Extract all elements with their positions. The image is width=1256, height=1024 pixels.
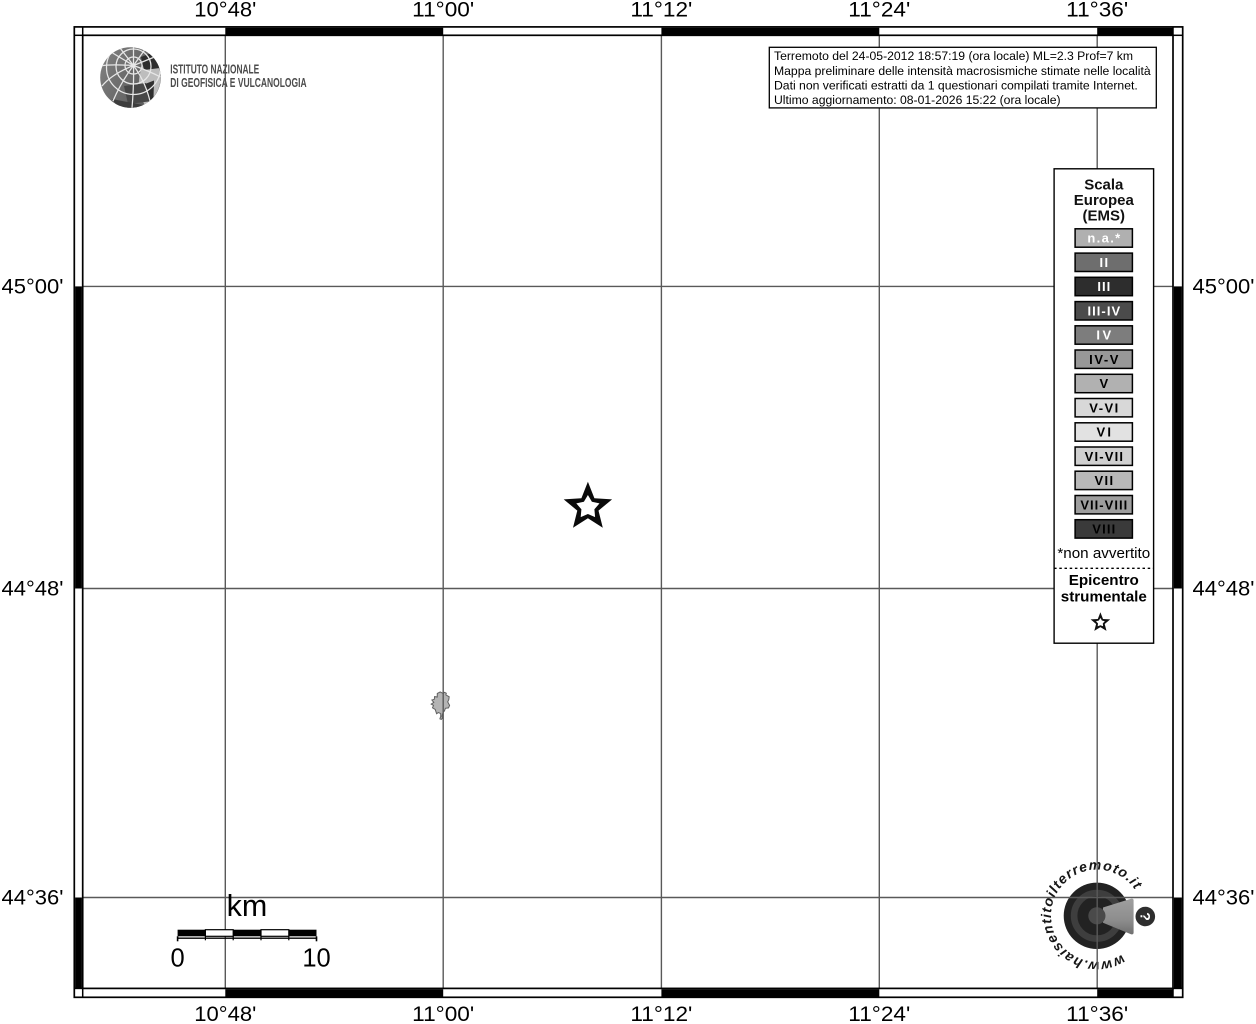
svg-text:44°48': 44°48'	[1193, 577, 1255, 601]
svg-text:10: 10	[302, 944, 330, 972]
svg-text:ISTITUTO NAZIONALE: ISTITUTO NAZIONALE	[170, 63, 259, 77]
svg-text:V-VI: V-VI	[1089, 400, 1118, 415]
svg-text:III-IV: III-IV	[1087, 304, 1120, 319]
svg-text:II: II	[1100, 255, 1109, 270]
svg-text:Dati non verificati estratti d: Dati non verificati estratti da 1 questi…	[774, 78, 1138, 92]
svg-text:44°36': 44°36'	[2, 886, 64, 910]
svg-text:VI-VII: VI-VII	[1085, 449, 1123, 464]
svg-text:Epicentro: Epicentro	[1069, 572, 1139, 589]
svg-text:11°24': 11°24'	[848, 0, 910, 22]
svg-text:VI: VI	[1097, 425, 1112, 440]
svg-text:n.a.*: n.a.*	[1087, 231, 1121, 246]
svg-text:45°00': 45°00'	[2, 274, 64, 298]
svg-text:IV: IV	[1096, 328, 1111, 343]
svg-text:44°48': 44°48'	[2, 577, 64, 601]
svg-text:Europea: Europea	[1074, 192, 1135, 209]
svg-text:0: 0	[171, 944, 185, 972]
svg-text:DI GEOFISICA E VULCANOLOGIA: DI GEOFISICA E VULCANOLOGIA	[170, 76, 306, 90]
svg-text:III: III	[1097, 279, 1110, 294]
svg-text:11°00': 11°00'	[412, 0, 474, 22]
svg-text:45°00': 45°00'	[1193, 274, 1255, 298]
svg-text:strumentale: strumentale	[1061, 588, 1147, 605]
svg-text:*non avvertito: *non avvertito	[1057, 545, 1150, 562]
svg-text:11°36': 11°36'	[1066, 0, 1128, 22]
svg-text:Terremoto del 24-05-2012 18:57: Terremoto del 24-05-2012 18:57:19 (ora l…	[774, 49, 1133, 63]
svg-text:10°48': 10°48'	[194, 0, 256, 22]
svg-text:11°24': 11°24'	[848, 1002, 910, 1024]
svg-text:(EMS): (EMS)	[1083, 207, 1126, 224]
svg-text:11°12': 11°12'	[630, 0, 692, 22]
svg-text:Ultimo aggiornamento: 08-01-20: Ultimo aggiornamento: 08-01-2026 15:22 (…	[774, 93, 1061, 107]
svg-text:V: V	[1099, 376, 1108, 391]
svg-text:VII: VII	[1094, 473, 1113, 488]
svg-text:IV-V: IV-V	[1089, 352, 1119, 367]
svg-text:44°36': 44°36'	[1193, 886, 1255, 910]
svg-text:11°12': 11°12'	[630, 1002, 692, 1024]
svg-text:km: km	[227, 889, 268, 923]
svg-text:11°36': 11°36'	[1066, 1002, 1128, 1024]
svg-text:11°00': 11°00'	[412, 1002, 474, 1024]
svg-text:VII-VIII: VII-VIII	[1080, 497, 1127, 512]
svg-text:VIII: VIII	[1092, 522, 1115, 537]
svg-text:?: ?	[1137, 912, 1153, 921]
svg-text:Scala: Scala	[1084, 176, 1124, 193]
svg-text:Mappa preliminare delle intens: Mappa preliminare delle intensità macros…	[774, 64, 1151, 78]
svg-text:10°48': 10°48'	[194, 1002, 256, 1024]
